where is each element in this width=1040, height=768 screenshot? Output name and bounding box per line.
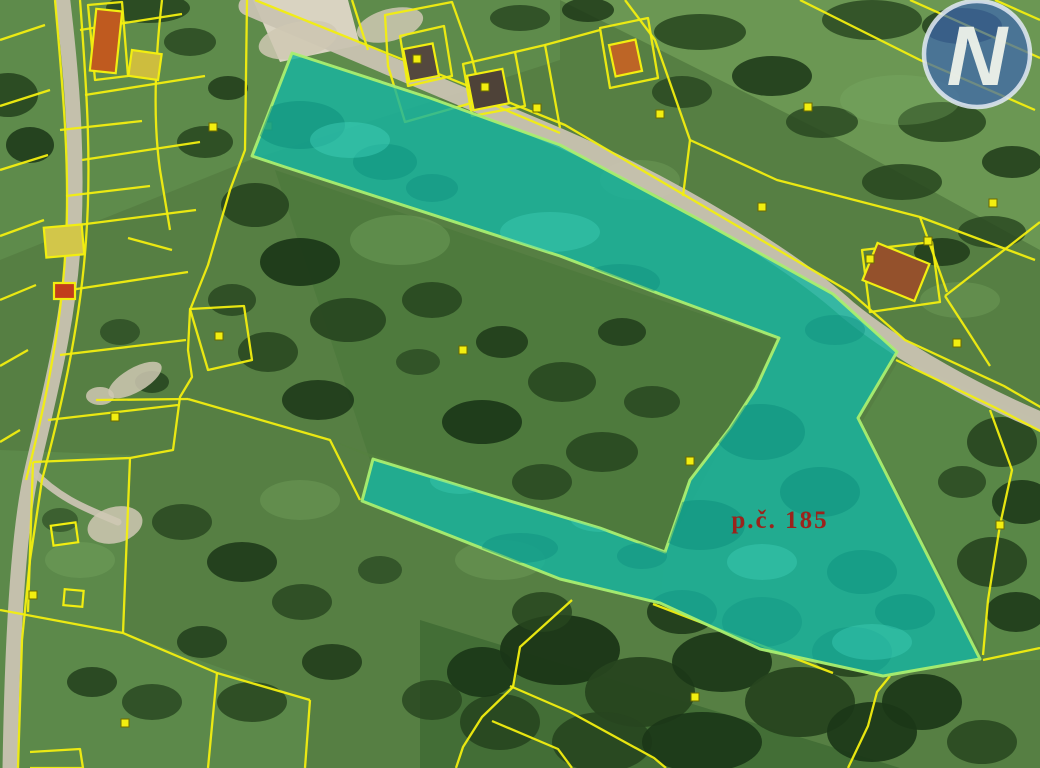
watermark-logo: N (924, 1, 1030, 107)
aerial-cadastral-view: p.č. 185 N (0, 0, 1040, 768)
parcel-number-label: p.č. 185 (731, 507, 828, 534)
cadastral-map: p.č. 185 N (0, 0, 1040, 768)
logo-letter: N (947, 9, 1010, 103)
